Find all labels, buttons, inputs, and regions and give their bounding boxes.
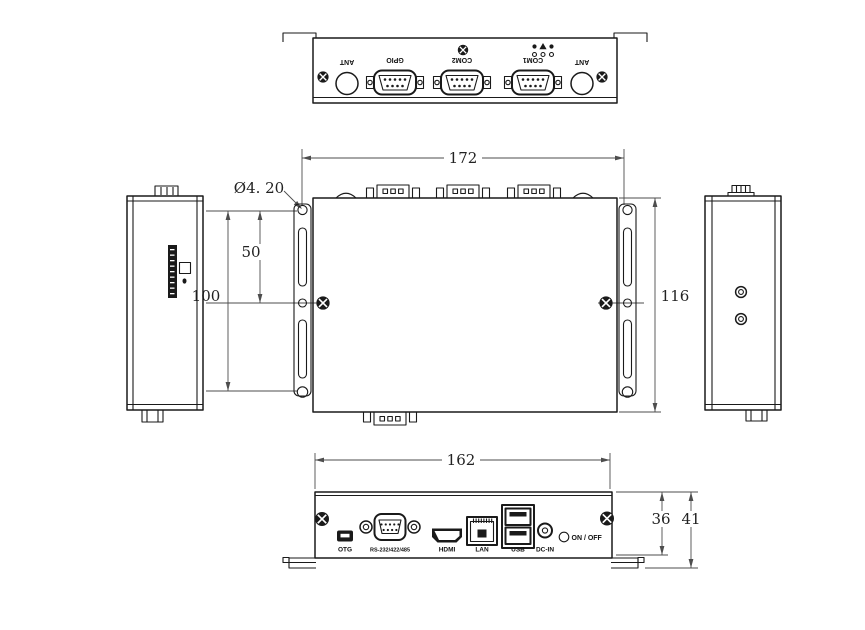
rear-mount-tab-right [614,33,647,42]
led-triangle-icon [539,43,546,49]
front-label-dcin: DC-IN [536,547,554,554]
dim-mount-span: 100 [192,287,221,305]
front-label-power: ON / OFF [572,535,603,542]
usb-ports [502,505,534,548]
dim-front-width: 162 [447,451,476,469]
front-label-usb: USB [511,547,525,554]
rear-screw-right-icon [596,71,607,82]
rear-label-ant-left: ANT [339,58,354,65]
dim-overall-height: 41 [681,510,700,528]
mount-slot [624,320,632,378]
serial-profile-bottom [364,412,417,425]
front-screw-left-icon [315,512,329,526]
front-label-lan: LAN [475,547,489,554]
rear-ground-screw-icon [458,45,469,56]
front-mount-tab-left [283,558,316,569]
front-panel-face [315,492,612,558]
mount-bracket-right [619,204,636,397]
lan-port [467,517,497,545]
right-side-view [705,186,781,422]
rear-label-com2: COM2 [452,56,472,63]
rear-screw-left-icon [317,71,328,82]
sim-slot [180,263,191,274]
mount-hole [298,205,307,214]
side-screw-hole [736,314,747,325]
dim-top-width: 172 [449,149,478,167]
dimension-drawing: ANT GPIO COM2 COM1 ANT 172 Ø4. 20 50 100 [0,0,865,630]
top-view [294,185,636,425]
com2-connector [434,71,491,95]
front-mount-tab-right [611,558,644,569]
drawing-canvas: ANT GPIO COM2 COM1 ANT 172 Ø4. 20 50 100 [0,0,865,630]
dim-mount-half: 50 [241,243,260,261]
chassis-body [313,198,617,412]
bottom-connector-bump [746,410,767,421]
led-ring-icon [550,53,554,57]
led-dot-icon [549,44,553,48]
bottom-connector-bump [142,410,163,422]
side-screw-hole-inner [739,317,744,322]
rear-ant-left-connector [336,73,358,95]
usb-port-bottom [506,528,531,545]
rear-label-com1: COM1 [523,56,543,63]
led-ring-icon [541,53,545,57]
right-side-body [705,196,781,410]
rear-mount-tab-left [283,33,316,42]
rear-label-ant-right: ANT [574,58,589,65]
top-connector-bump [155,186,178,196]
case-screw-left-icon [316,296,329,309]
com2-profile [437,185,490,198]
dim-panel-height: 36 [651,510,670,528]
rear-panel-view: ANT GPIO COM2 COM1 ANT [283,33,647,103]
usb-port-top [506,509,531,526]
mount-slot [299,320,307,378]
case-screw-right-icon [599,296,612,309]
mount-bracket-left [294,204,311,397]
led-dot-icon [532,44,536,48]
gpio-connector [367,71,424,95]
front-panel-view: OTG RS-232/422/485 HDMI LAN USB DC-IN ON… [283,492,644,568]
side-screw-hole [736,287,747,298]
front-screw-right-icon [600,512,614,526]
dimensions: 172 Ø4. 20 50 100 116 162 [192,149,703,568]
dc-in-jack [538,524,552,538]
power-button [559,532,569,542]
rear-label-gpio: GPIO [386,56,404,63]
dim-hole-diameter: Ø4. 20 [234,179,284,197]
rear-ant-right-connector [571,73,593,95]
side-label-strip [168,245,177,298]
status-led-indicators [532,43,553,57]
front-label-otg: OTG [338,547,352,554]
front-label-serial: RS-232/422/485 [370,548,410,554]
otg-port [337,531,353,542]
gpio-profile [367,185,420,198]
com1-connector [505,71,562,95]
mount-hole [623,205,632,214]
dim-body-height: 116 [661,287,690,305]
side-screw-hole-inner [739,290,744,295]
reset-button [183,278,187,283]
mount-slot [299,228,307,286]
mount-slot [624,228,632,286]
serial-connector [360,514,420,540]
hdmi-port [432,529,462,543]
com1-profile [508,185,561,198]
top-connector-bump [728,186,754,197]
led-ring-icon [533,53,537,57]
front-label-hdmi: HDMI [439,547,456,554]
